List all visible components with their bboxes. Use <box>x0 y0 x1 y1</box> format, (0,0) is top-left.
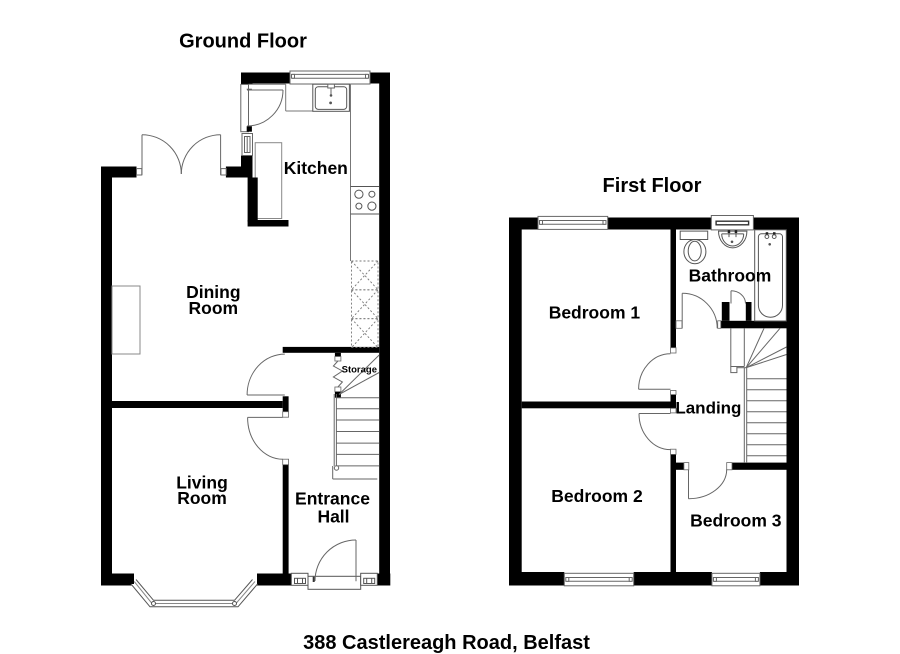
svg-text:Bathroom: Bathroom <box>689 266 772 286</box>
svg-text:Hall: Hall <box>317 507 349 527</box>
svg-text:Room: Room <box>189 298 239 318</box>
svg-text:Ground Floor: Ground Floor <box>179 31 307 53</box>
svg-text:Bedroom 2: Bedroom 2 <box>551 486 643 506</box>
svg-text:Bedroom 1: Bedroom 1 <box>549 303 641 323</box>
svg-text:Entrance: Entrance <box>295 489 370 509</box>
svg-text:Kitchen: Kitchen <box>284 158 348 178</box>
svg-text:Bedroom 3: Bedroom 3 <box>690 511 782 531</box>
svg-text:First Floor: First Floor <box>603 175 702 197</box>
svg-text:Storage: Storage <box>342 365 377 376</box>
svg-text:Room: Room <box>177 488 227 508</box>
svg-text:388 Castlereagh Road, Belfast: 388 Castlereagh Road, Belfast <box>303 632 590 654</box>
svg-text:Landing: Landing <box>675 399 741 418</box>
